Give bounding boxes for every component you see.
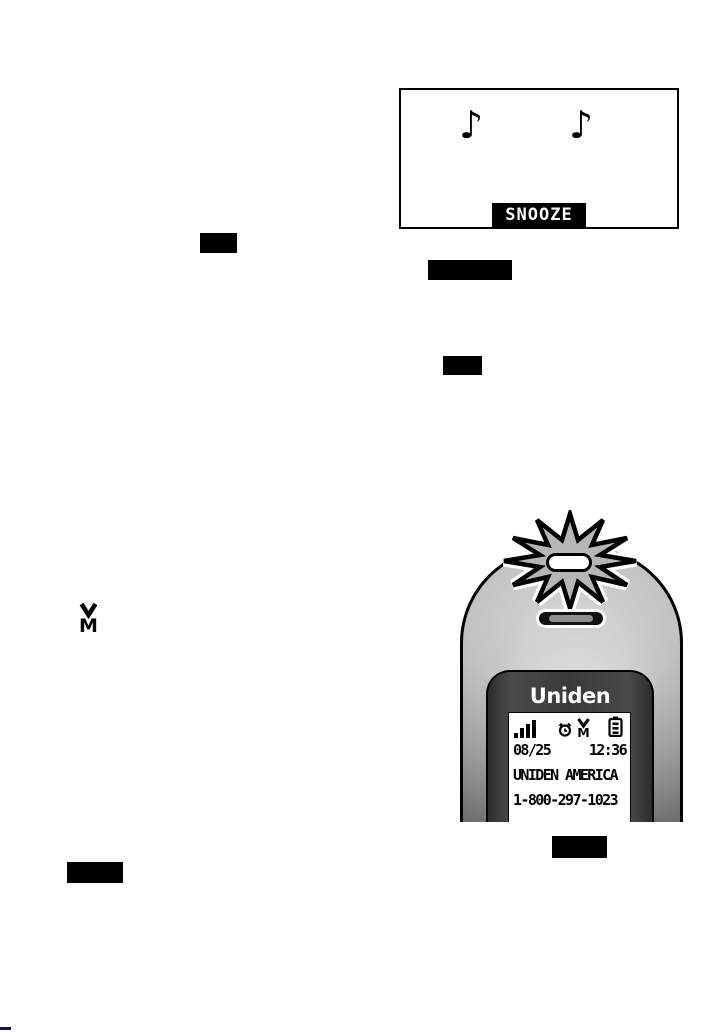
chevron-down-icon [82,604,96,615]
alarm-clock-icon [558,722,572,737]
earpiece-speaker-slot [539,612,603,625]
alarm-screen-figure: ♪ ♪ SNOOZE [399,88,679,229]
music-note-icon: ♪ [459,106,483,144]
lcd-status-icon-row: M [513,717,626,738]
message-letter: M [79,615,98,634]
message-waiting-icon: M [577,717,590,738]
handset-face-panel: Uniden M [486,670,654,822]
snooze-softkey-label: SNOOZE [492,203,586,227]
lcd-caller-number: 1-800-297-1023 [513,788,626,813]
handset-lcd: M 08/25 12:36 UNIDEN AMERICA 1-800-297 [508,712,631,822]
svg-text:M: M [577,725,589,738]
signal-strength-icon [514,720,536,738]
key-label-black-bar [552,836,607,858]
message-waiting-icon: M [79,601,98,638]
battery-level-icon [608,716,623,737]
lcd-caller-name: UNIDEN AMERICA [513,763,626,788]
lcd-date: 08/25 [513,738,550,763]
key-label-black-bar [200,233,237,253]
lcd-date-time-row: 08/25 12:36 [513,738,626,763]
brand-logo: Uniden [488,684,652,708]
led-indicator [546,553,592,572]
key-label-black-bar [428,260,512,280]
manual-page: ♪ ♪ SNOOZE M Uniden [0,0,727,1033]
speaker-slot-inner [549,615,593,622]
lcd-time: 12:36 [589,738,626,763]
music-note-icon: ♪ [569,106,593,144]
handset-illustration: Uniden M [458,508,686,822]
page-corner-print-mark [0,1027,11,1030]
key-label-black-bar [67,862,123,883]
key-label-black-bar [443,356,482,375]
